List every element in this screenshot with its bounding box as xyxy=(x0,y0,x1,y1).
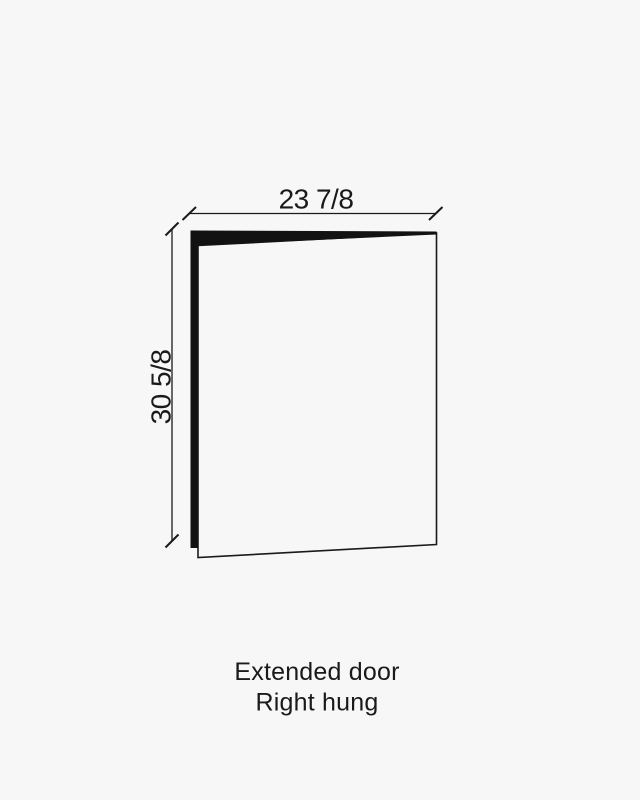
door-diagram: 23 7/8 30 5/8 Extended door Right hung xyxy=(0,0,640,800)
height-dimension-label: 30 5/8 xyxy=(146,350,177,425)
caption-line-2: Right hung xyxy=(256,689,379,717)
door-face-panel xyxy=(198,233,437,558)
diagram-canvas: 23 7/8 30 5/8 Extended door Right hung xyxy=(0,0,640,800)
caption-line-1: Extended door xyxy=(234,658,399,686)
door-drawing xyxy=(191,231,437,558)
width-dimension-label: 23 7/8 xyxy=(279,184,354,215)
